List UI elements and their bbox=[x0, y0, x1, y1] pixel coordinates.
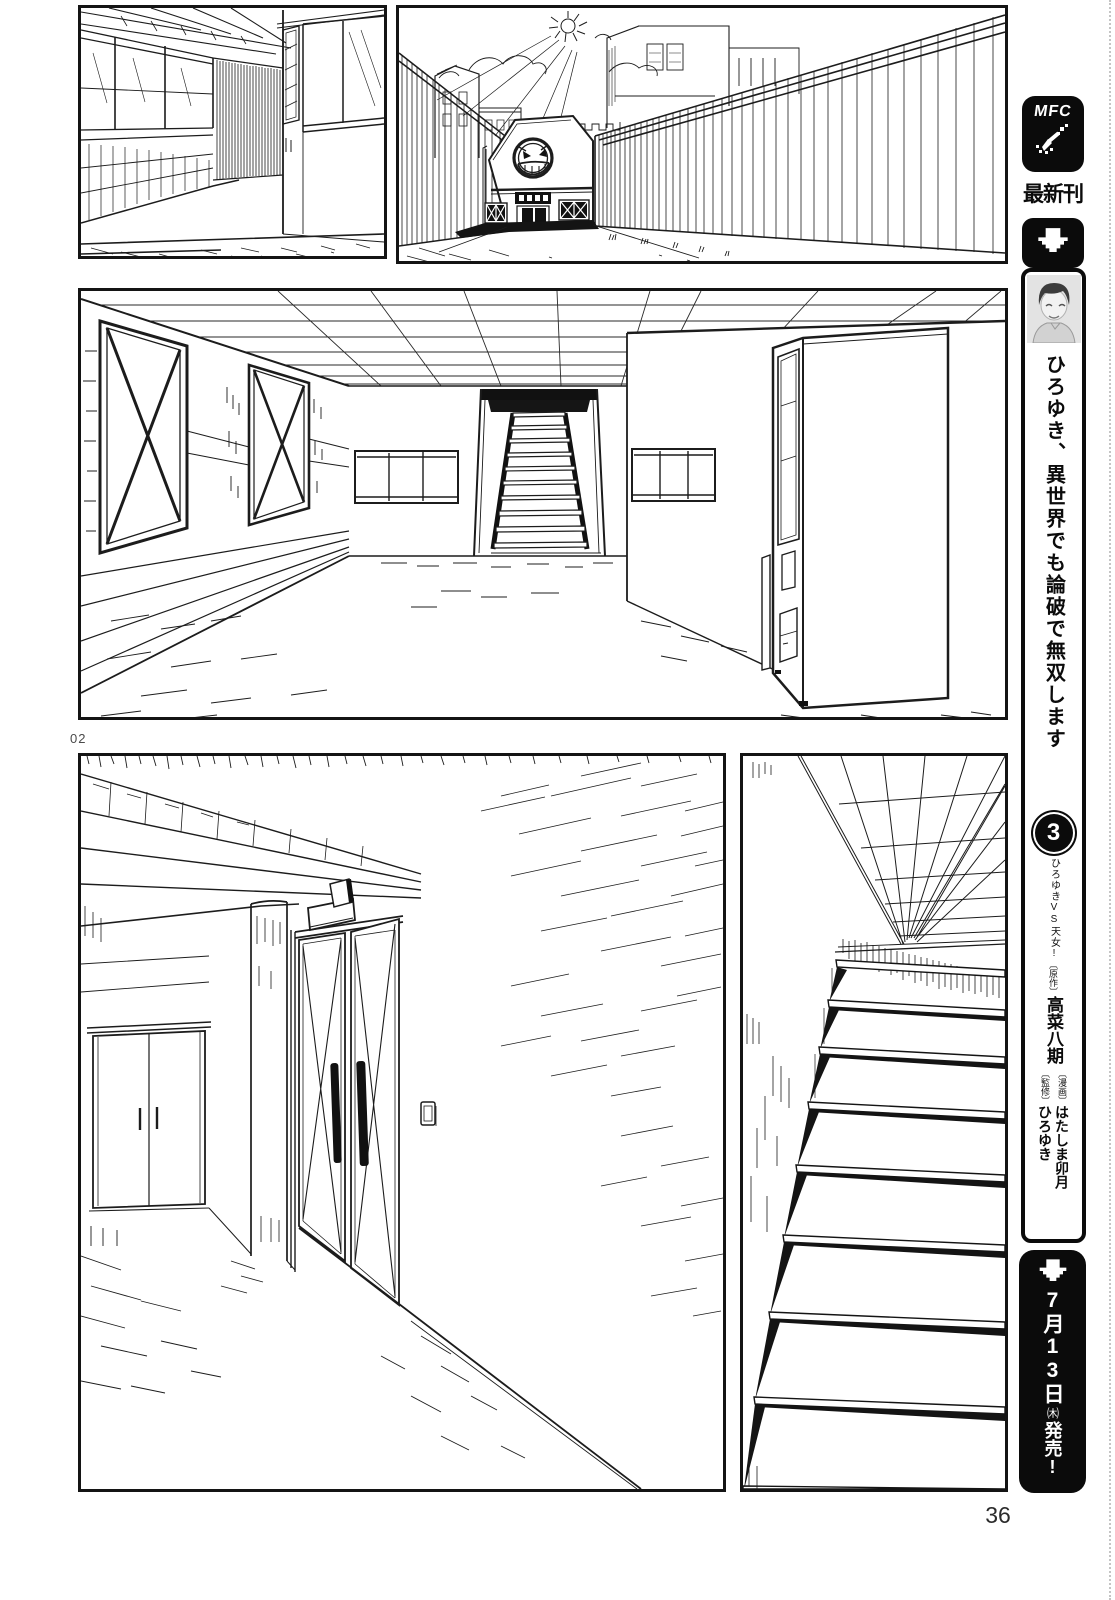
pixel-quill-icon bbox=[1034, 121, 1072, 160]
panel-staircase-art bbox=[743, 756, 1005, 1489]
credit-supervisor-role: 〔監修〕 bbox=[1040, 1069, 1050, 1105]
latest-issue-label: 最新刊 bbox=[1014, 178, 1092, 208]
book-tagline: ひろゆきVS天女! bbox=[1049, 858, 1059, 954]
credit-original-name: 高菜八期 bbox=[1044, 996, 1063, 1064]
panel-street-art bbox=[399, 8, 1005, 261]
panel-hallway bbox=[78, 753, 726, 1492]
manga-page: 02 36 MFC 最新刊 bbox=[0, 0, 1115, 1600]
panel-lobby-art bbox=[81, 291, 1005, 717]
publisher-logo-box: MFC bbox=[1022, 96, 1084, 172]
book-title: ひろゆき、異世界でも論破で無双します bbox=[1044, 354, 1064, 810]
release-date: 7月13日 bbox=[1042, 1289, 1063, 1405]
panel-street bbox=[396, 5, 1008, 264]
release-weekday: ㈭ bbox=[1047, 1407, 1059, 1419]
credit-original-role: 〔原作〕 bbox=[1048, 960, 1058, 996]
page-number: 36 bbox=[966, 1502, 1030, 1529]
panel-hallway-art bbox=[81, 756, 723, 1489]
trim-mark-dotted-line bbox=[1109, 0, 1111, 1600]
panel-staircase bbox=[740, 753, 1008, 1492]
panel-corridor-art bbox=[81, 8, 384, 256]
credit-supervisor: 〔監修〕ひろゆき bbox=[1037, 1069, 1053, 1189]
credit-pair: 〔監修〕ひろゆき 〔漫画〕はたしま卯月 bbox=[1037, 1069, 1070, 1189]
panel-corridor bbox=[78, 5, 387, 259]
release-date-box: 7月13日 ㈭ 発売! bbox=[1019, 1250, 1086, 1493]
credit-original: 〔原作〕高菜八期 bbox=[1045, 960, 1062, 1064]
book-ad-box: ひろゆき、異世界でも論破で無双します 3 ひろゆきVS天女! 〔原作〕高菜八期 … bbox=[1021, 268, 1086, 1243]
credit-artist-name: はたしま卯月 bbox=[1054, 1105, 1070, 1189]
publisher-logo-text: MFC bbox=[1033, 103, 1073, 121]
pixel-down-arrow-icon-2 bbox=[1033, 1258, 1073, 1289]
credit-supervisor-name: ひろゆき bbox=[1037, 1105, 1053, 1161]
panel-lobby bbox=[78, 288, 1008, 720]
down-arrow-box bbox=[1022, 218, 1084, 268]
panel-number-label: 02 bbox=[70, 731, 86, 746]
credit-artist: 〔漫画〕はたしま卯月 bbox=[1054, 1069, 1070, 1189]
pixel-down-arrow-icon bbox=[1031, 225, 1075, 262]
release-label: 発売! bbox=[1044, 1421, 1062, 1477]
volume-badge: 3 bbox=[1035, 814, 1073, 852]
author-portrait bbox=[1027, 275, 1081, 348]
credit-artist-role: 〔漫画〕 bbox=[1057, 1069, 1067, 1105]
